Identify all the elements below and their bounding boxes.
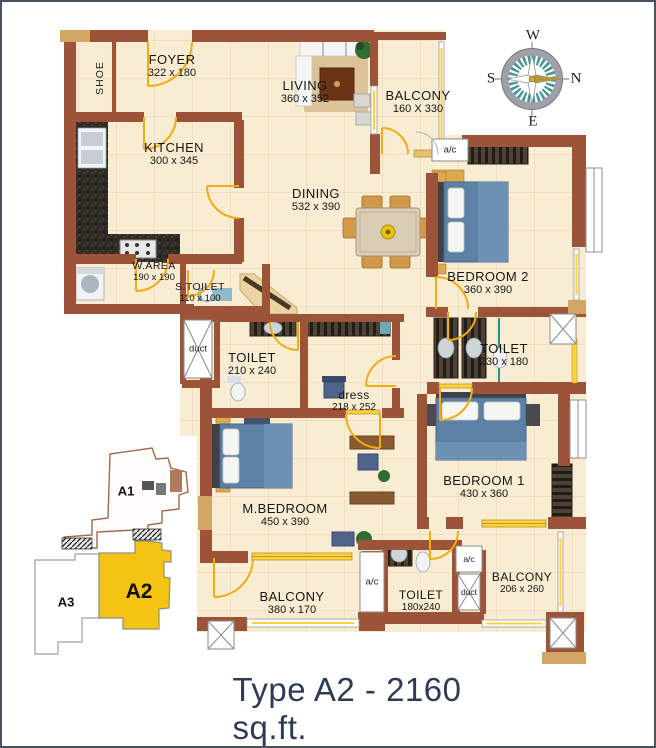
duct-label-bottom: duct [461,587,477,597]
keyplan-unit-a3-label: A3 [58,595,75,610]
room-label-warea: W.AREA 190 x 190 [132,260,175,284]
room-label-living: LIVING 360 x 352 [281,78,329,106]
room-label-toilet-bottom: TOILET 180x240 [399,588,443,614]
compass-north-label: N [571,71,582,88]
duct-label-left: duct [189,344,207,355]
compass-south-label: S [487,71,495,88]
ac-label-bottom-mid: a/c [366,577,379,588]
keyplan-unit-a2-label: A2 [126,580,153,604]
ac-label-bottom-right: a/c [463,554,474,564]
room-label-bedroom1: BEDROOM 1 430 x 360 [443,473,525,501]
room-label-mbedroom: M.BEDROOM 450 x 390 [242,501,327,529]
room-label-toilet-mid: TOILET 210 x 240 [228,350,276,378]
compass-east-label: E [528,114,537,131]
room-label-dress: dress 218 x 252 [332,388,376,414]
keyplan-graphic [35,448,188,654]
compass-west-label: W [526,28,540,45]
floor-plan-page: SHOE FOYER 322 x 180 LIVING 360 x 352 BA… [0,0,656,748]
room-label-foyer: FOYER 322 x 180 [148,52,196,80]
floor-plan-canvas [2,2,656,748]
plan-title: Type A2 - 2160 sq.ft. [233,671,514,747]
ac-label-top: a/c [444,145,457,156]
room-label-bedroom2: BEDROOM 2 360 x 390 [447,269,529,297]
room-label-kitchen: KITCHEN 300 x 345 [144,140,204,168]
room-label-balcony-br: BALCONY 206 x 260 [492,570,552,596]
room-label-toilet-right: TOILET 230 x 180 [480,341,528,369]
room-label-stoilet: S.TOILET 110 x 100 [175,281,225,305]
compass-icon [495,42,569,116]
shoe-rack-label: SHOE [94,61,106,95]
room-label-balcony-top: BALCONY 160 X 330 [386,88,451,116]
room-label-dining: DINING 532 x 390 [292,186,340,214]
keyplan-unit-a1-label: A1 [118,484,135,499]
room-label-balcony-bl: BALCONY 380 x 170 [260,589,325,617]
